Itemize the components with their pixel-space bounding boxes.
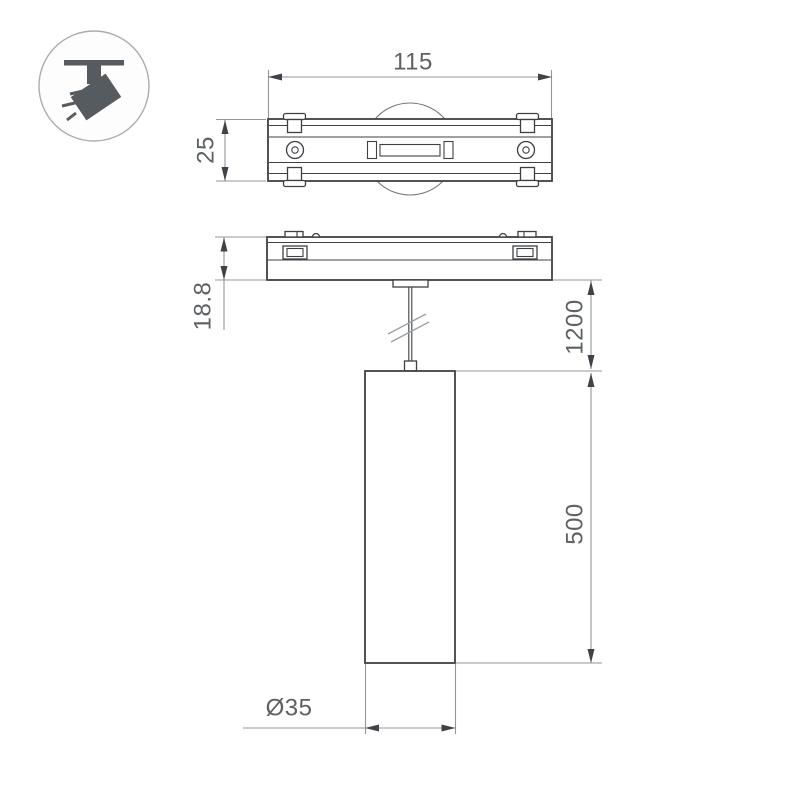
screw-right (518, 142, 535, 159)
wire-connector (405, 361, 417, 371)
arrow-left (268, 74, 282, 81)
dim-label-1200: 1200 (562, 299, 589, 354)
arrow-right (538, 74, 552, 81)
dim-body-height: 500 (456, 373, 602, 663)
mount-type-badge (39, 31, 149, 141)
wire-flange (393, 280, 428, 287)
side-view (267, 232, 552, 372)
dim-label-115: 115 (393, 49, 433, 76)
arrow-up (588, 373, 595, 387)
arrow-down (221, 266, 228, 280)
pendant-cylinder (365, 371, 455, 663)
latch-right (513, 246, 537, 259)
top-notch-left (285, 232, 303, 238)
top-notch-right (518, 232, 536, 238)
technical-drawing-page: 115 25 18.8 1200 500 (0, 0, 800, 800)
dim-label-diameter: Ø35 (266, 695, 313, 722)
dim-label-18.8: 18.8 (190, 282, 217, 331)
screw-left (287, 142, 304, 159)
latch-left (283, 246, 307, 259)
dim-label-500: 500 (562, 503, 589, 545)
arrow-down (588, 649, 595, 663)
arrow-left (365, 725, 379, 732)
arrow-right (442, 725, 456, 732)
adapter-body-plan (268, 119, 552, 181)
arrow-up (222, 120, 229, 134)
dim-adapter-height: 18.8 (190, 237, 267, 330)
arrow-down (588, 355, 595, 369)
dim-body-diameter: Ø35 (243, 664, 456, 734)
dim-suspension-length: 1200 (456, 280, 602, 371)
dimension-drawing: 115 25 18.8 1200 500 (0, 0, 800, 800)
adapter-body-side (267, 237, 552, 280)
arrow-down (222, 167, 229, 181)
dim-label-25: 25 (193, 136, 220, 164)
top-view (268, 103, 552, 195)
arrow-up (588, 281, 595, 295)
dim-track-width: 115 (268, 49, 552, 119)
bump-right (500, 234, 507, 238)
arrow-up (221, 238, 228, 252)
bump-left (313, 234, 320, 238)
dim-track-depth: 25 (193, 120, 267, 182)
